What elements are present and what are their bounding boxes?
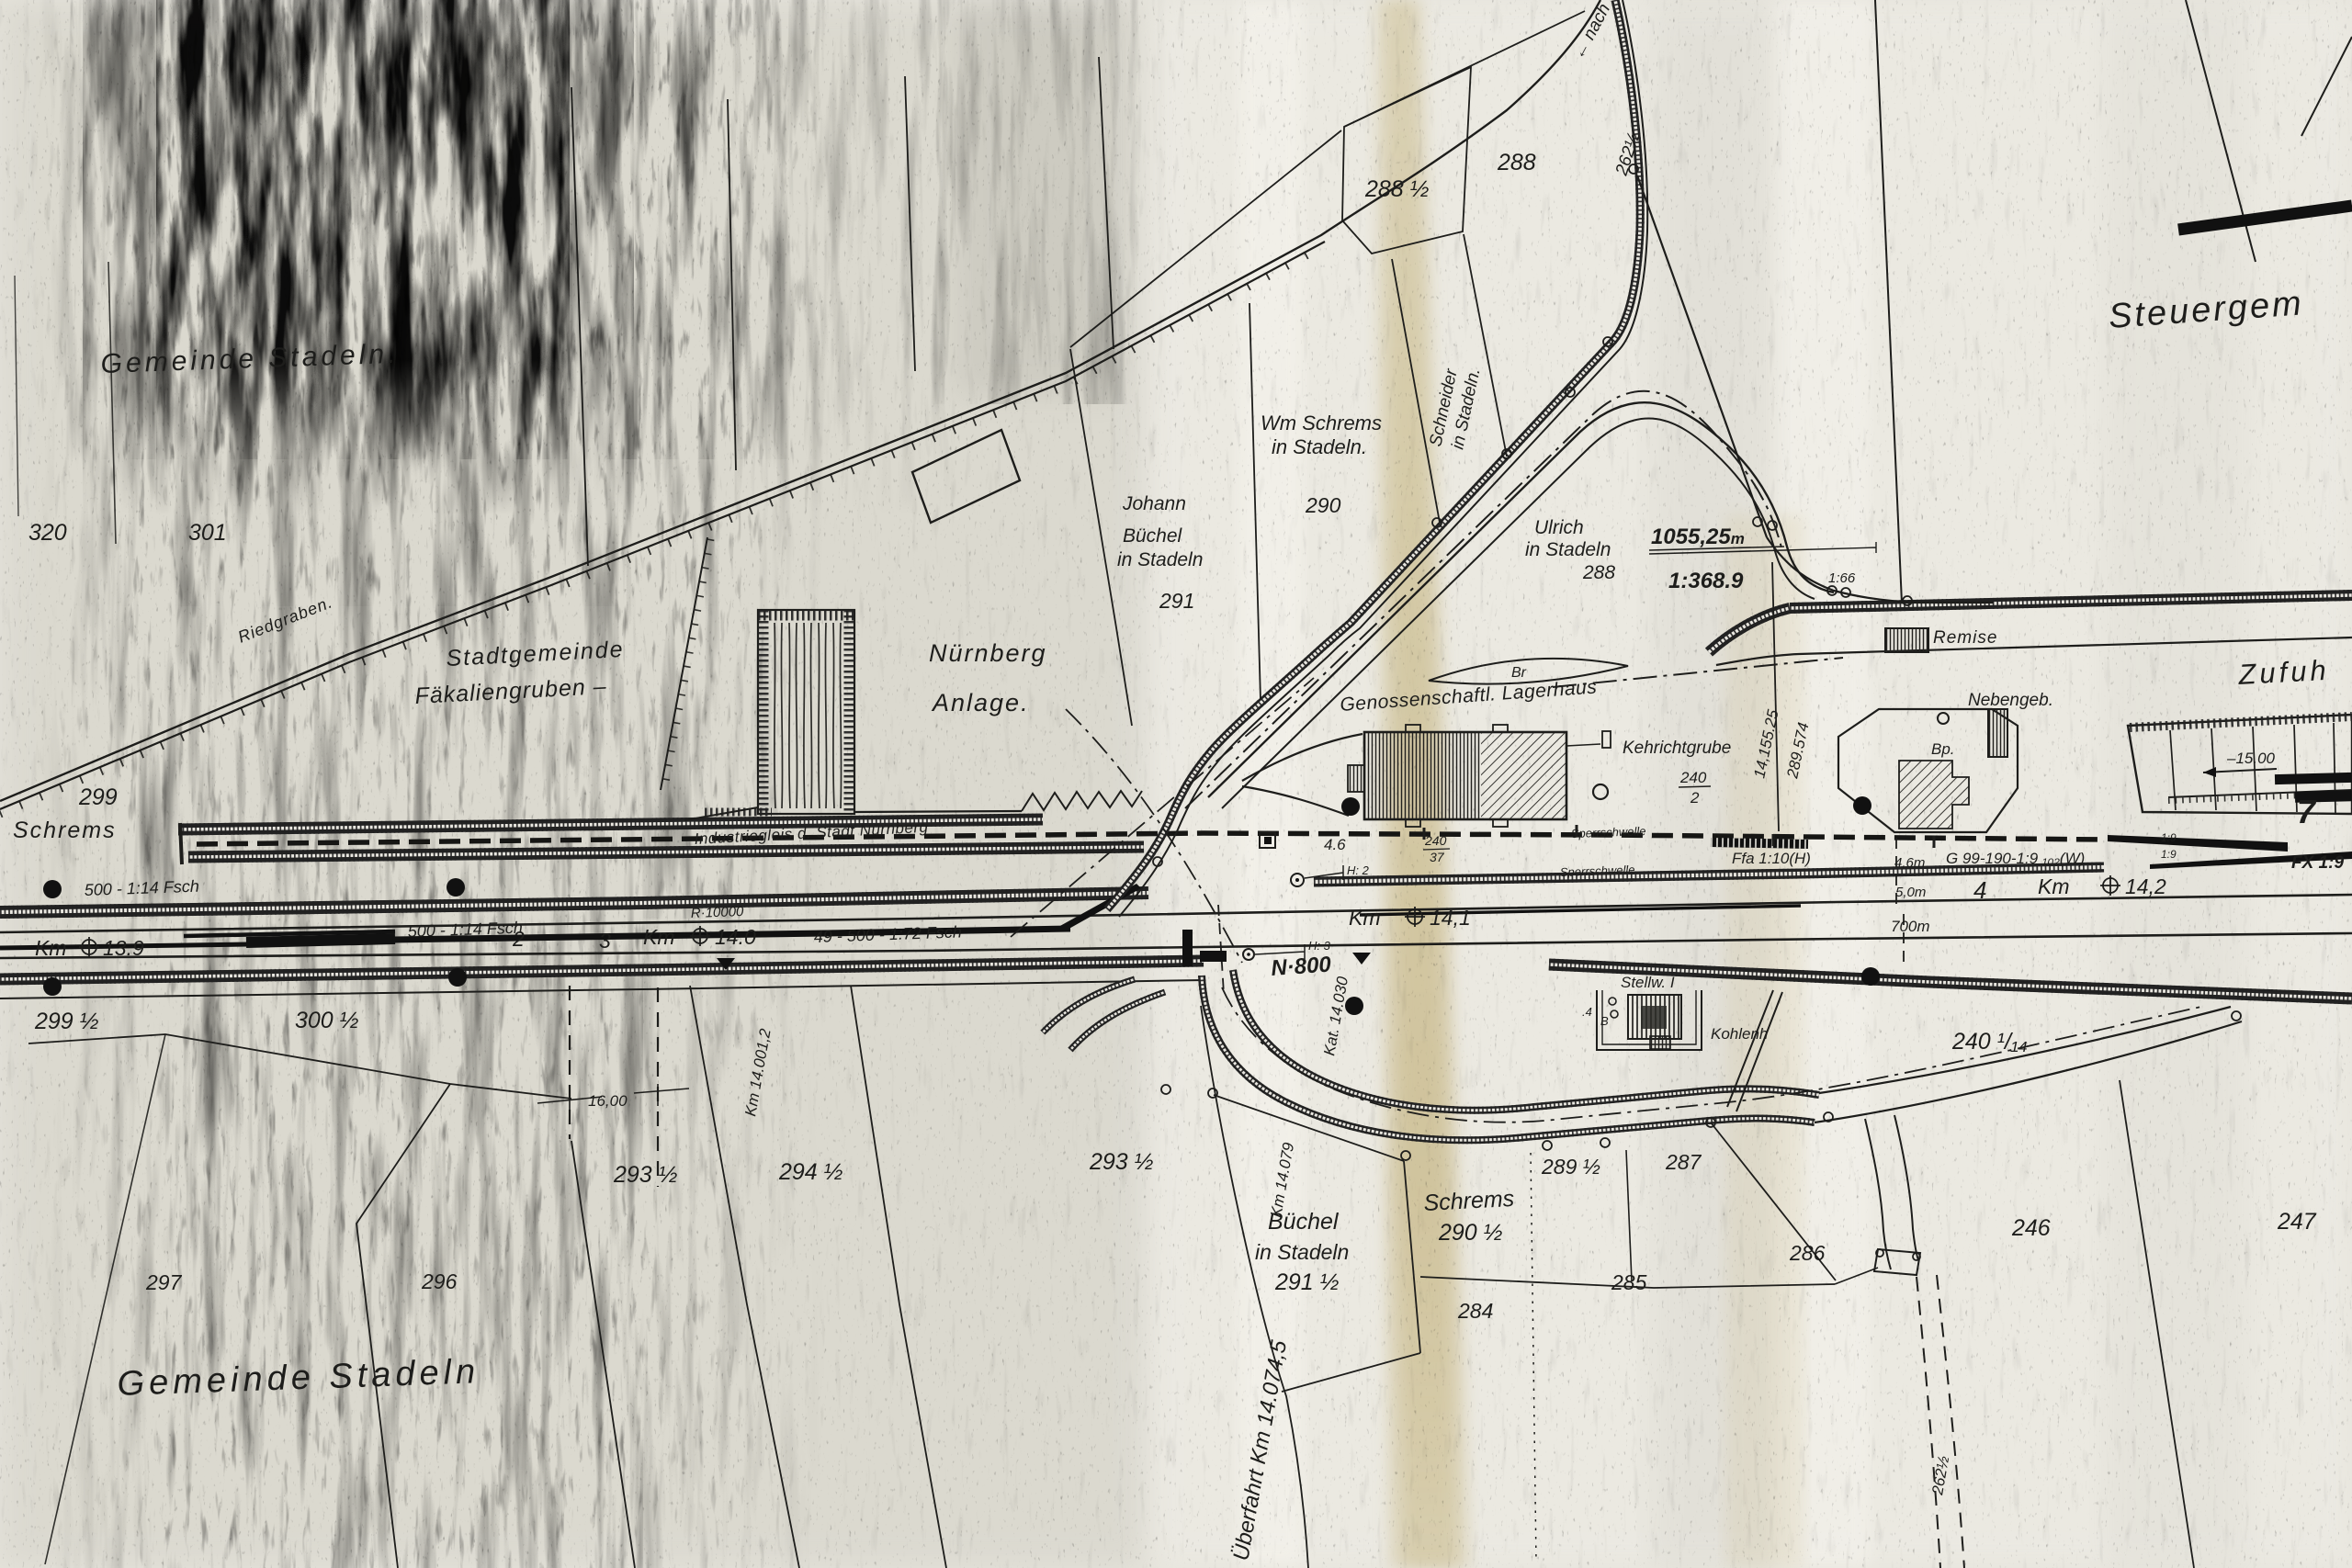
svg-text:16,00: 16,00 [588, 1092, 628, 1110]
svg-text:1:66: 1:66 [1828, 570, 1856, 586]
svg-text:284: 284 [1457, 1299, 1493, 1323]
svg-text:14,2: 14,2 [2125, 874, 2166, 898]
svg-text:293 ½: 293 ½ [1089, 1149, 1154, 1175]
svg-text:Km: Km [35, 936, 67, 960]
svg-text:240 ¹/₁₄: 240 ¹/₁₄ [1951, 1029, 2028, 1055]
svg-text:2: 2 [512, 927, 525, 951]
svg-text:288: 288 [1497, 150, 1536, 175]
svg-text:3: 3 [599, 929, 611, 953]
svg-text:4,6m: 4,6m [1894, 855, 1925, 871]
svg-text:700m: 700m [1891, 918, 1930, 935]
svg-text:294 ½: 294 ½ [778, 1159, 843, 1185]
svg-text:Schrems: Schrems [1423, 1186, 1515, 1216]
svg-text:Kohlenh: Kohlenh [1711, 1025, 1768, 1043]
svg-text:297: 297 [145, 1270, 183, 1294]
svg-text:H: 3: H: 3 [1308, 939, 1331, 953]
svg-text:1:9: 1:9 [2161, 848, 2177, 861]
svg-text:291 ½: 291 ½ [1274, 1269, 1340, 1295]
svg-text:R·10000: R·10000 [691, 904, 745, 921]
svg-text:Ffa 1:10(H): Ffa 1:10(H) [1732, 850, 1811, 867]
svg-text:Br: Br [1511, 665, 1527, 681]
svg-text:in Stadeln: in Stadeln [1117, 549, 1203, 570]
svg-text:14.0: 14.0 [715, 925, 756, 949]
svg-text:13.9: 13.9 [103, 936, 144, 960]
svg-text:320: 320 [28, 520, 67, 546]
svg-text:Zufuh: Zufuh [2237, 654, 2331, 691]
svg-text:Sperrschwelle: Sperrschwelle [1560, 863, 1635, 879]
svg-text:Anlage.: Anlage. [931, 689, 1030, 716]
svg-text:Bp.: Bp. [1931, 740, 1955, 758]
svg-text:1:368.9: 1:368.9 [1668, 569, 1744, 593]
svg-text:G 99-190-1:9 ₁₀₂(W): G 99-190-1:9 ₁₀₂(W) [1946, 850, 2085, 867]
svg-text:–15.00: –15.00 [2226, 750, 2276, 767]
svg-text:2: 2 [1690, 789, 1700, 807]
svg-text:FX 1:9: FX 1:9 [2291, 853, 2344, 873]
svg-text:285: 285 [1611, 1270, 1647, 1294]
svg-text:Km: Km [1349, 906, 1381, 930]
svg-text:5,0m: 5,0m [1895, 885, 1926, 900]
svg-text:1055,25m: 1055,25m [1651, 525, 1745, 549]
svg-text:288: 288 [1582, 562, 1615, 583]
svg-text:Ulrich: Ulrich [1534, 517, 1584, 538]
svg-text:in Stadeln: in Stadeln [1255, 1240, 1349, 1264]
svg-text:Kehrichtgrube: Kehrichtgrube [1623, 739, 1731, 758]
svg-text:4: 4 [1973, 876, 1986, 904]
svg-text:247: 247 [2277, 1209, 2317, 1235]
svg-text:240: 240 [1424, 833, 1447, 848]
svg-text:301: 301 [188, 520, 227, 546]
svg-text:Km: Km [2038, 874, 2070, 898]
svg-text:Remise: Remise [1933, 628, 1997, 648]
svg-text:296: 296 [421, 1269, 458, 1293]
svg-text:290 ½: 290 ½ [1438, 1220, 1503, 1246]
svg-text:291: 291 [1159, 589, 1194, 613]
svg-text:287: 287 [1665, 1150, 1702, 1174]
svg-text:Büchel: Büchel [1268, 1209, 1340, 1235]
svg-text:290: 290 [1305, 493, 1341, 517]
svg-text:Büchel: Büchel [1123, 525, 1183, 547]
svg-text:Nürnberg: Nürnberg [929, 639, 1047, 667]
svg-text:Schrems: Schrems [13, 818, 117, 843]
svg-text:293 ½: 293 ½ [613, 1162, 678, 1188]
svg-text:37: 37 [1430, 850, 1445, 864]
svg-text:H: 2: H: 2 [1347, 863, 1370, 877]
svg-text:N·800: N·800 [1271, 952, 1333, 981]
svg-text:300 ½: 300 ½ [295, 1008, 359, 1033]
svg-text:286: 286 [1789, 1241, 1826, 1265]
svg-text:4.6: 4.6 [1324, 836, 1346, 853]
svg-text:Nebengeb.: Nebengeb. [1968, 691, 2053, 710]
svg-text:246: 246 [2011, 1215, 2051, 1241]
svg-text:14,1: 14,1 [1430, 906, 1471, 930]
svg-text:in Stadeln.: in Stadeln. [1272, 435, 1367, 458]
svg-text:299 ½: 299 ½ [34, 1009, 99, 1034]
svg-text:Wm Schrems: Wm Schrems [1261, 412, 1382, 434]
svg-text:Stellw. I: Stellw. I [1621, 974, 1675, 991]
svg-text:.4: .4 [1582, 1005, 1592, 1019]
svg-text:in Stadeln: in Stadeln [1525, 539, 1611, 560]
svg-text:288 ½: 288 ½ [1364, 176, 1430, 202]
svg-text:299: 299 [78, 784, 118, 810]
svg-text:B: B [1600, 1014, 1609, 1028]
svg-text:240: 240 [1679, 769, 1707, 786]
svg-text:289 ½: 289 ½ [1541, 1155, 1600, 1179]
svg-text:Johann: Johann [1122, 493, 1186, 514]
svg-text:Km: Km [643, 925, 675, 949]
svg-text:7: 7 [2297, 793, 2317, 830]
svg-text:1:9: 1:9 [2161, 831, 2177, 844]
svg-text:Sperrschwelle: Sperrschwelle [1571, 824, 1646, 840]
